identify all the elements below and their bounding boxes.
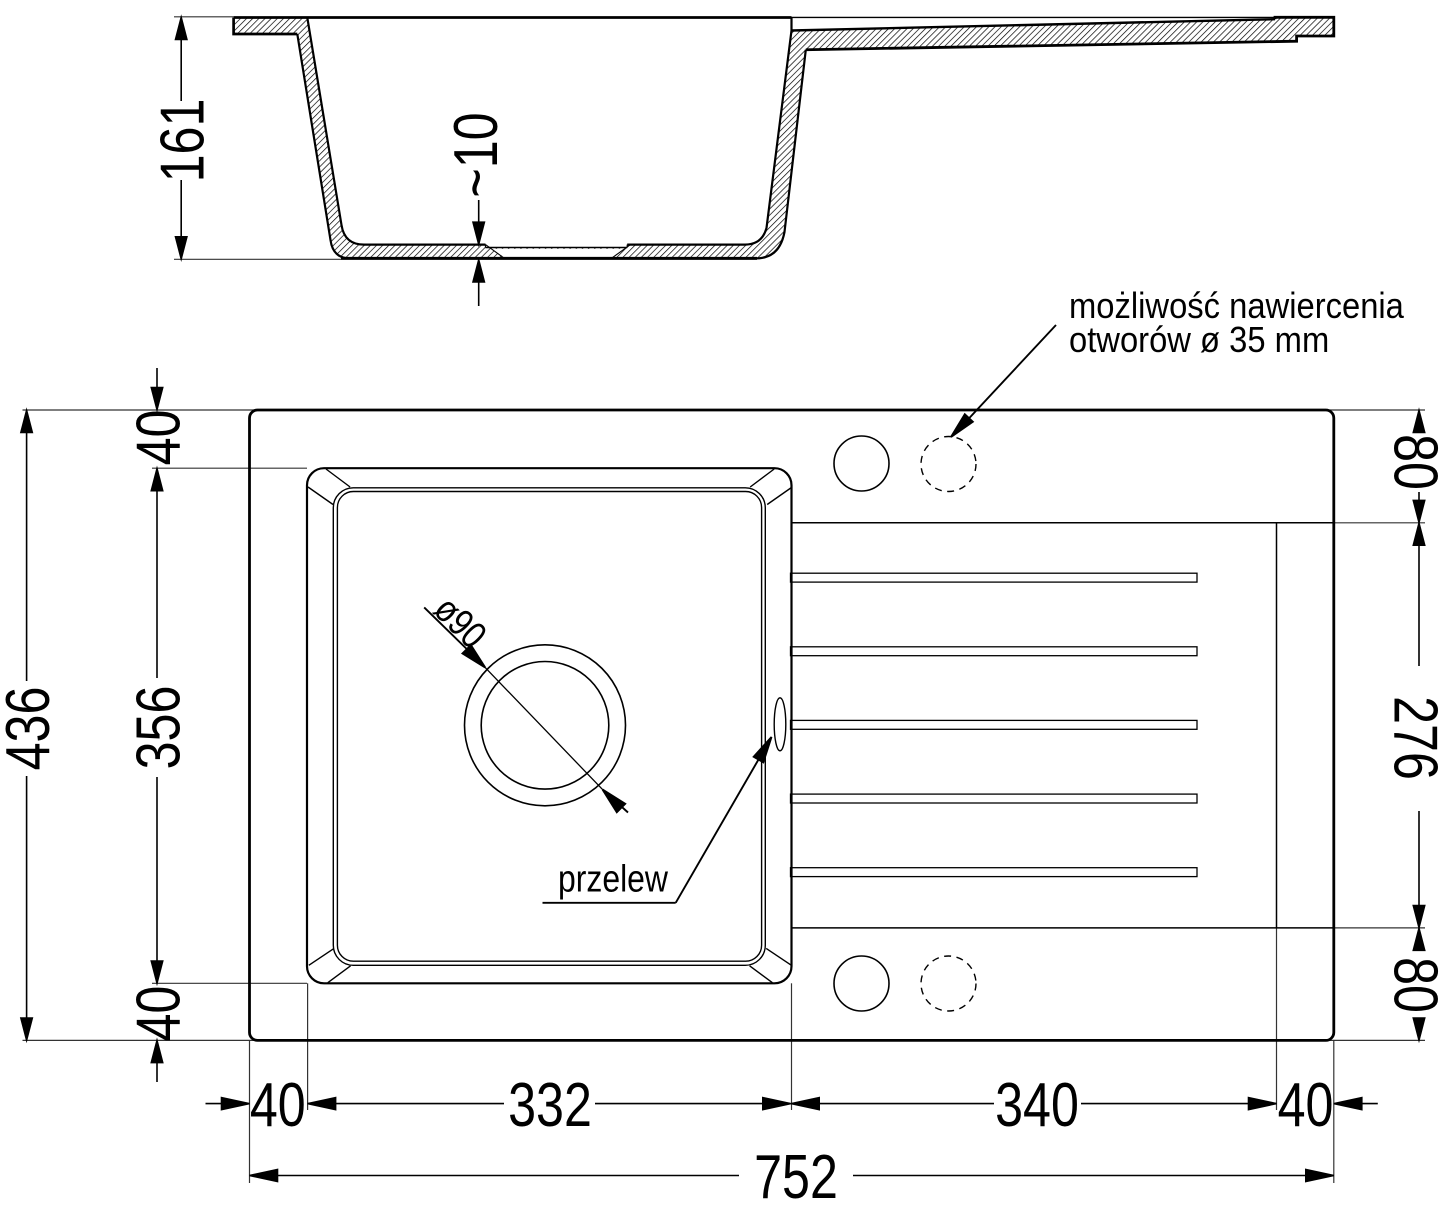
svg-text:356: 356 <box>123 686 192 770</box>
svg-text:340: 340 <box>995 1070 1079 1139</box>
svg-text:40: 40 <box>1278 1070 1334 1139</box>
svg-text:40: 40 <box>123 986 192 1042</box>
svg-text:otworów ø 35 mm: otworów ø 35 mm <box>1069 321 1329 361</box>
svg-text:80: 80 <box>1381 957 1447 1013</box>
svg-text:40: 40 <box>123 410 192 466</box>
svg-text:80: 80 <box>1381 434 1447 490</box>
svg-text:161: 161 <box>147 99 216 183</box>
svg-text:~10: ~10 <box>441 112 510 197</box>
svg-text:332: 332 <box>508 1070 592 1139</box>
svg-text:276: 276 <box>1381 696 1447 780</box>
svg-text:40: 40 <box>250 1070 306 1139</box>
svg-text:752: 752 <box>754 1142 838 1209</box>
svg-text:przelew: przelew <box>558 858 669 900</box>
svg-text:436: 436 <box>0 687 62 771</box>
